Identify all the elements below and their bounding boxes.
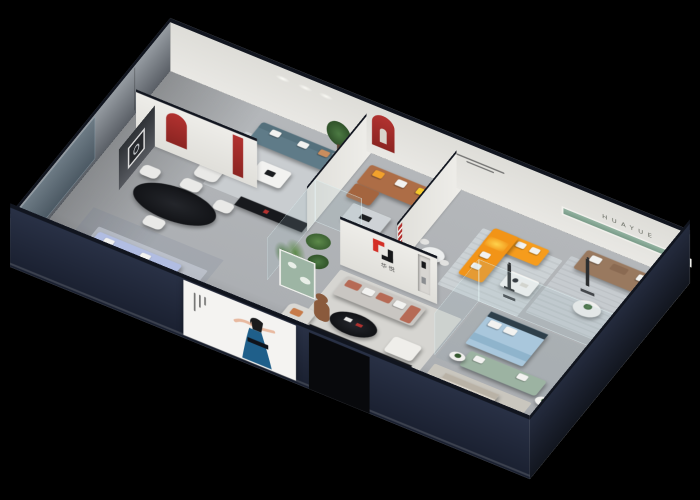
red-arch-niche — [166, 110, 187, 150]
red-slim-niche — [233, 134, 243, 178]
sculpture-figure — [581, 253, 595, 298]
wall-caption-line — [456, 153, 504, 174]
isometric-floorplan: HUAYUE — [10, 71, 690, 479]
showroom-render: HUAYUE — [0, 0, 700, 500]
display-niche — [418, 254, 430, 296]
red-arch-niche — [372, 112, 395, 154]
